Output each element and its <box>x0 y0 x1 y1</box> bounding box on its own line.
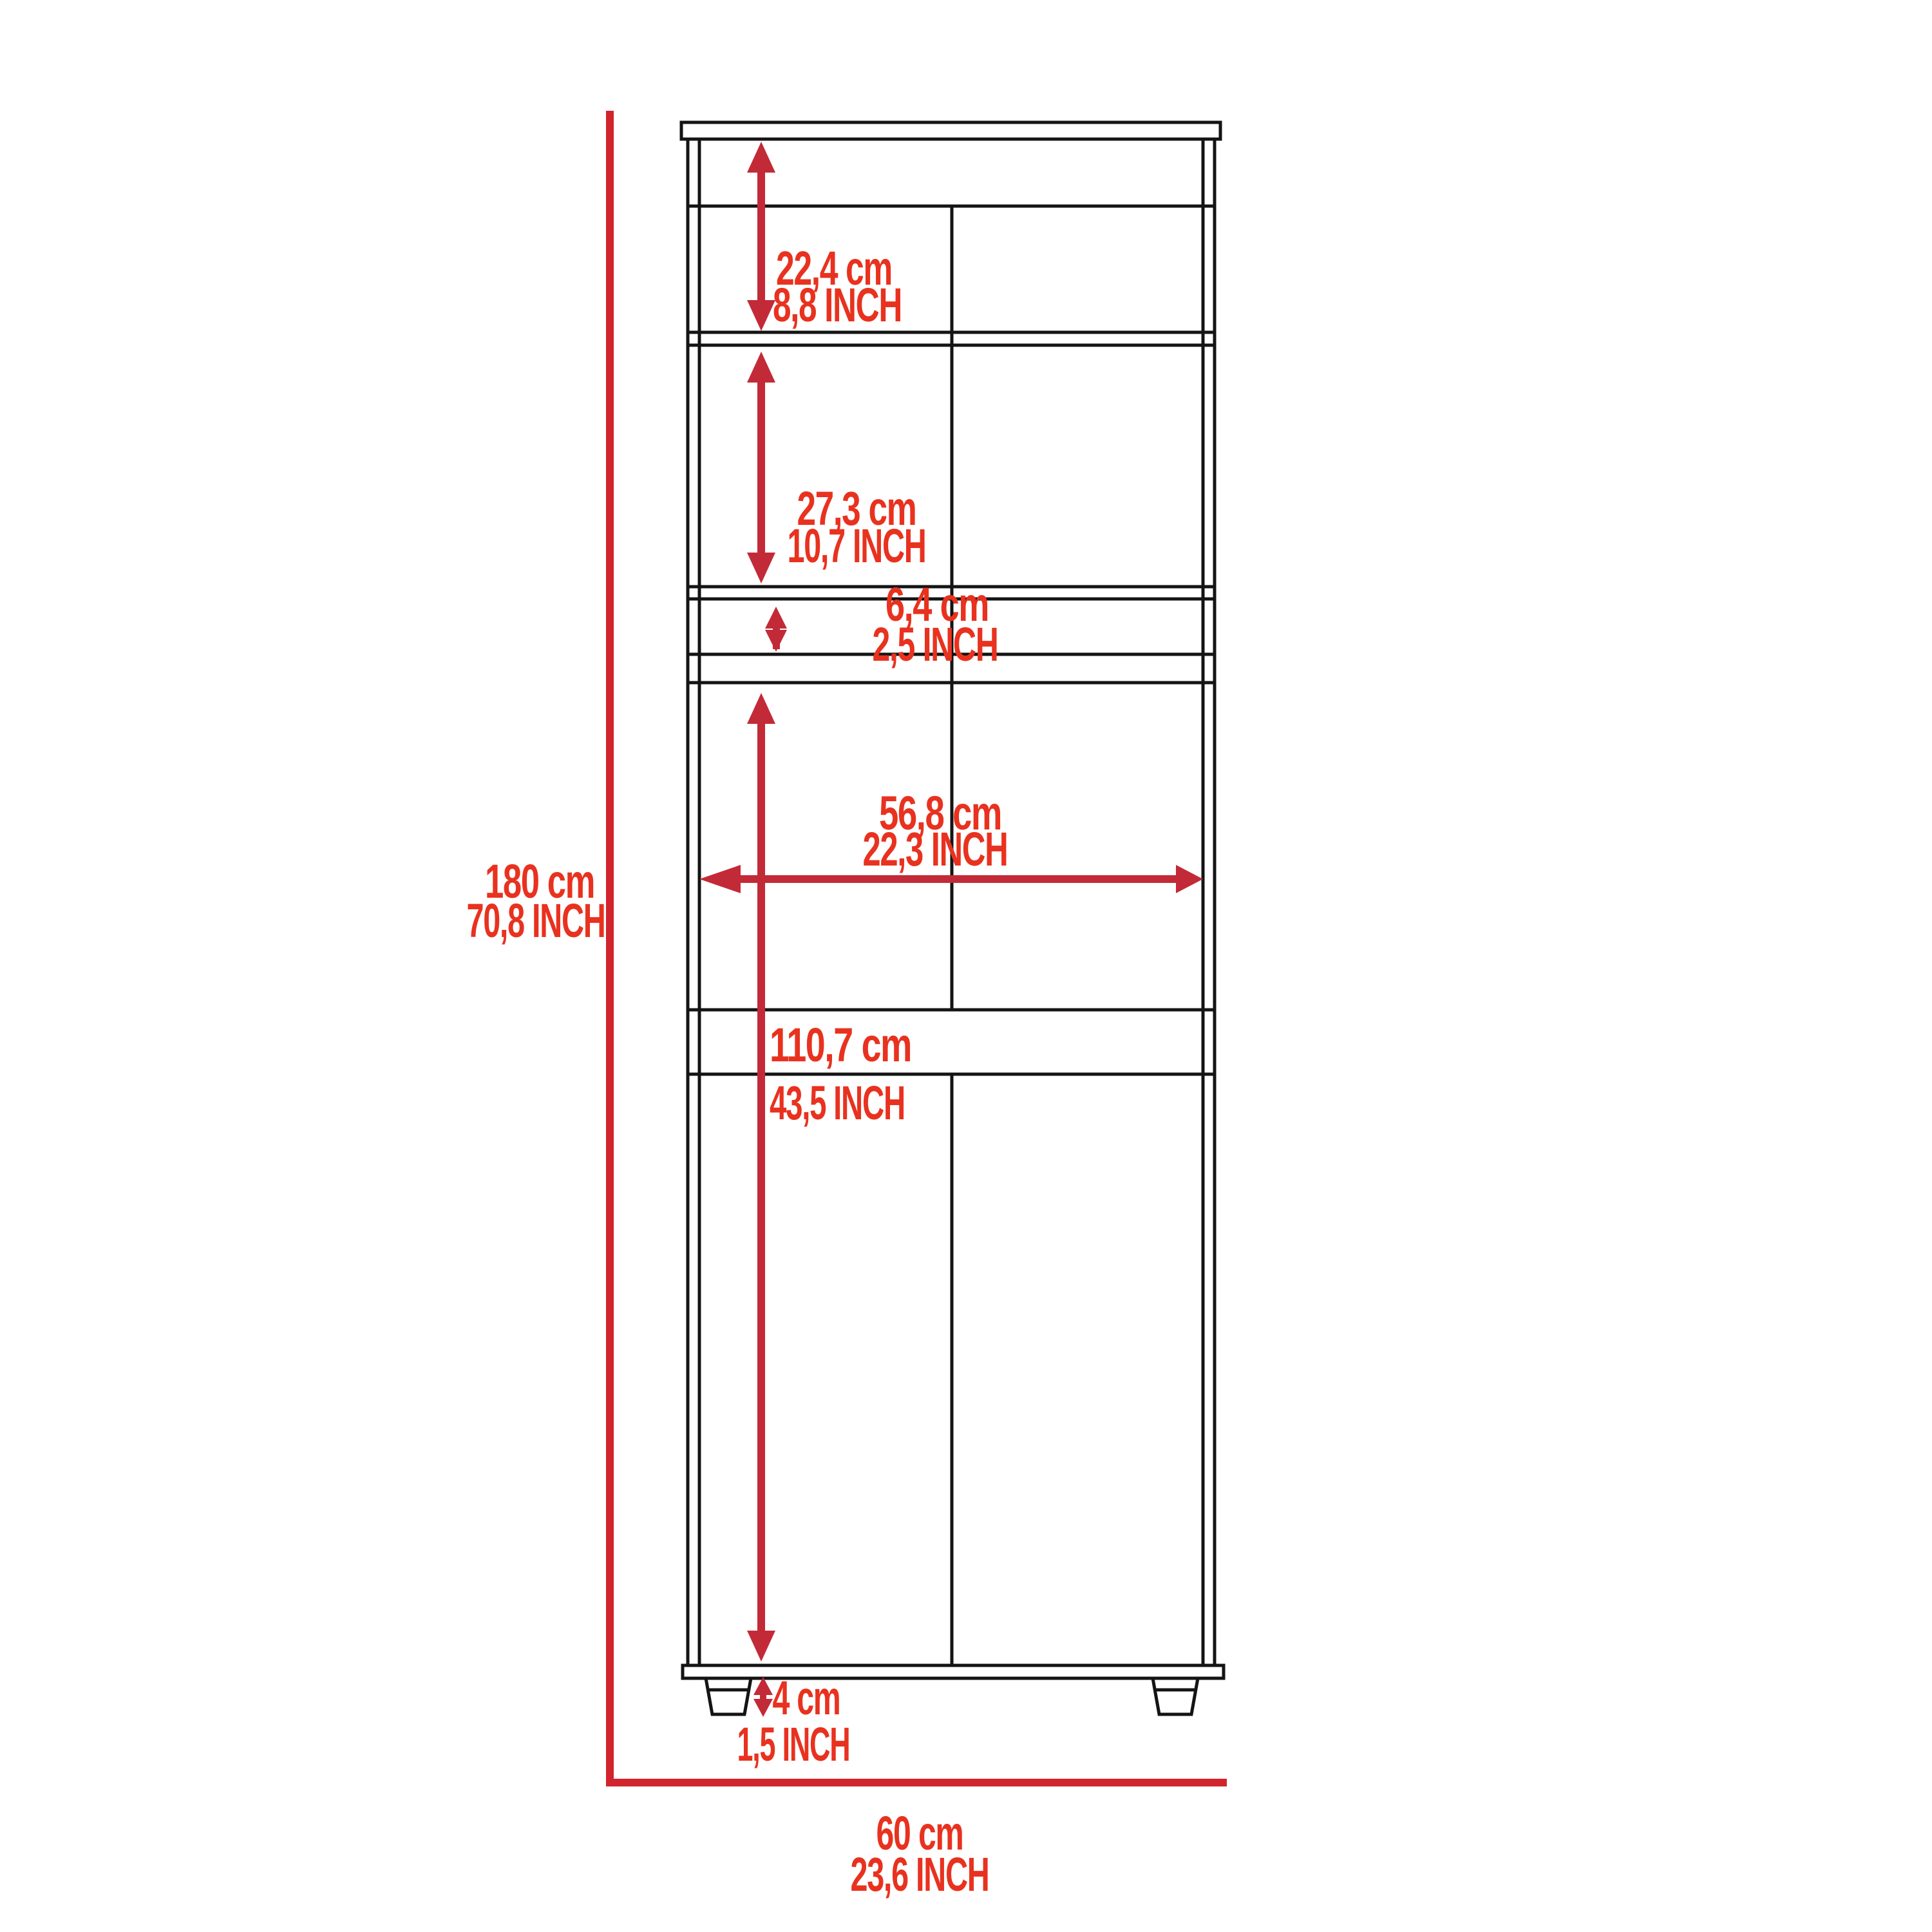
open-shelf-gap-label-inch: 2,5 INCH <box>873 618 998 671</box>
leg-height-label-cm: 4 cm <box>773 1671 840 1725</box>
leg-height-label-inch: 1,5 INCH <box>737 1718 850 1771</box>
left-leg-outline <box>706 1678 751 1714</box>
overall-width-rule-line <box>606 1779 1227 1786</box>
cabinet-right-leg <box>1153 1678 1198 1714</box>
upper-door-label-inch: 10,7 INCH <box>788 519 926 573</box>
arrow-shaft <box>757 719 765 1633</box>
overall-width-label-inch: 23,6 INCH <box>851 1848 989 1901</box>
cabinet-dimension-diagram: 22,4 cm 8,8 INCH 27,3 cm 10,7 INCH 6,4 c… <box>0 0 1932 1932</box>
cabinet-left-leg <box>706 1678 751 1714</box>
right-leg-outline <box>1153 1678 1198 1714</box>
diagram-canvas: 22,4 cm 8,8 INCH 27,3 cm 10,7 INCH 6,4 c… <box>0 0 1932 1932</box>
arrow-shaft <box>757 377 765 554</box>
leg-height-arrow <box>753 1677 773 1717</box>
interior-width-label-inch: 22,3 INCH <box>863 822 1008 876</box>
arrow-shaft <box>735 875 1181 883</box>
arrow-down-head <box>753 1699 773 1717</box>
lower-door-label-inch: 43,5 INCH <box>770 1076 905 1130</box>
cabinet-top-board <box>681 122 1220 139</box>
lower-door-label-cm: 110,7 cm <box>770 1018 911 1072</box>
cabinet-bottom-board <box>683 1665 1224 1678</box>
overall-height-label-inch: 70,8 INCH <box>467 894 605 947</box>
top-compartment-label-inch: 8,8 INCH <box>773 278 902 332</box>
arrow-shaft <box>757 167 765 304</box>
overall-height-rule-line <box>606 111 614 1786</box>
